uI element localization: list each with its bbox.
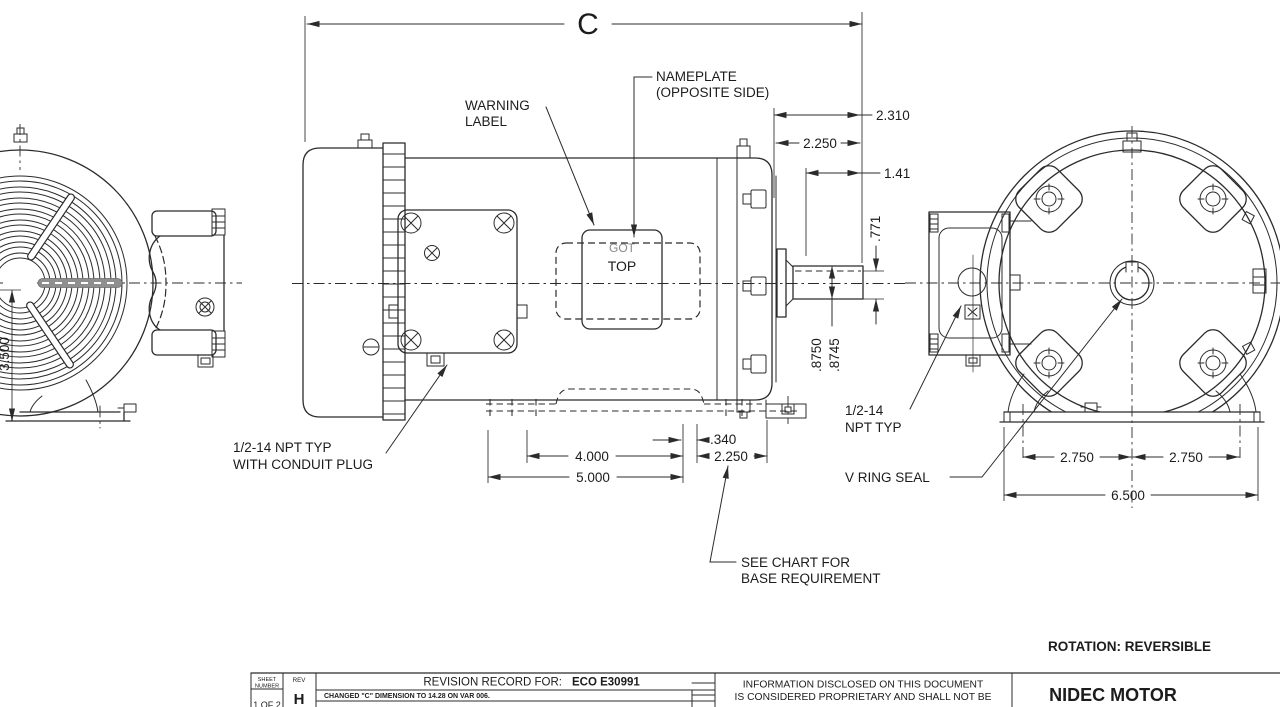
dim-shaft-dia-min: .8745 — [827, 338, 842, 372]
fan-cover-clip — [358, 134, 372, 148]
dim-6500-text: 6.500 — [1111, 488, 1145, 503]
conduit-label-2: WITH CONDUIT PLUG — [233, 457, 373, 472]
fan-cover — [303, 148, 383, 417]
dim-c-text: C — [577, 8, 599, 41]
sheet-number-label-2: NUMBER — [255, 684, 279, 690]
fan-end-feet — [6, 380, 136, 428]
dim-2750-right-text: 2.750 — [1169, 450, 1203, 465]
dim-771-text: .771 — [868, 216, 883, 242]
revision-record-eco: ECO E30991 — [572, 677, 640, 689]
see-chart-label-2: BASE REQUIREMENT — [741, 571, 881, 586]
fan-end-view: 3.500 — [0, 124, 242, 428]
side-view-labels: WARNING LABEL NAMEPLATE (OPPOSITE SIDE) … — [233, 69, 881, 586]
see-chart-leader — [710, 466, 736, 562]
shaft — [777, 249, 863, 317]
proprietary-line-2: IS CONSIDERED PROPRIETARY AND SHALL NOT … — [735, 692, 992, 703]
npt-leader — [910, 306, 961, 409]
dim-2750-left-text: 2.750 — [1060, 450, 1094, 465]
revision-note: CHANGED "C" DIMENSION TO 14.28 ON VAR 00… — [324, 693, 490, 700]
nameplate-text-2: (OPPOSITE SIDE) — [656, 85, 769, 100]
title-block: SHEET NUMBER 1 OF 2 REV H REVISION RECOR… — [251, 673, 1280, 707]
dim-2250-base-text: 2.250 — [714, 449, 748, 464]
rotation-note: ROTATION: REVERSIBLE — [1048, 639, 1211, 654]
conduit-box — [389, 210, 527, 366]
sheet-number-value: 1 OF 2 — [253, 700, 281, 707]
side-view: GOT TOP WARNING LABEL NAMEPLATE (OPPOSIT… — [233, 8, 910, 586]
dim-3500: 3.500 — [0, 290, 21, 421]
conduit-leader — [386, 365, 447, 453]
dim-5000-text: 5.000 — [576, 470, 610, 485]
flange-bolts — [737, 139, 766, 418]
motor-body — [405, 158, 776, 400]
dim-2250-top-text: 2.250 — [803, 136, 837, 151]
front-view: 1/2-14 NPT TYP V RING SEAL 2.750 2.750 6… — [845, 126, 1280, 508]
rev-value: H — [294, 691, 305, 707]
proprietary-line-1: INFORMATION DISCLOSED ON THIS DOCUMENT — [743, 680, 984, 691]
warning-label-text-2: LABEL — [465, 114, 508, 129]
conduit-label-1: 1/2-14 NPT TYP — [233, 440, 332, 455]
warning-label-text-1: WARNING — [465, 98, 530, 113]
dim-shaft-dia-max: .8750 — [809, 338, 824, 372]
plate-faint-text: GOT — [609, 241, 636, 255]
nameplate-text-1: NAMEPLATE — [656, 69, 737, 84]
louver-band — [363, 143, 405, 420]
npt-label-2: NPT TYP — [845, 420, 902, 435]
plate-top-text: TOP — [608, 258, 637, 274]
dim-340-text: .340 — [710, 432, 736, 447]
revision-record-label: REVISION RECORD FOR: — [423, 677, 562, 689]
conduit-box-side-profile — [149, 209, 225, 367]
npt-label-1: 1/2-14 — [845, 403, 884, 418]
dim-141-text: 1.41 — [884, 166, 910, 181]
side-view-dimensions: C 2.310 2.250 1.41 .771 .8750 .8745 — [305, 8, 910, 485]
motor-outline-drawing: 3.500 — [0, 0, 1280, 707]
hidden-base — [486, 389, 806, 424]
warning-plate: GOT TOP — [556, 230, 700, 329]
sheet-number-label-1: SHEET — [258, 677, 277, 683]
engineering-drawing-sheet: 3.500 — [0, 0, 1280, 707]
nameplate-leader — [634, 77, 652, 237]
warning-leader — [546, 107, 594, 225]
company-name: NIDEC MOTOR — [1049, 685, 1177, 705]
dim-4000-text: 4.000 — [575, 449, 609, 464]
rev-label: REV — [293, 677, 307, 684]
mounting-pads — [1011, 161, 1251, 401]
v-ring-seal-label: V RING SEAL — [845, 470, 930, 485]
top-bolt — [14, 128, 27, 142]
dim-3500-text: 3.500 — [0, 337, 12, 371]
dim-2310-text: 2.310 — [876, 108, 910, 123]
see-chart-label-1: SEE CHART FOR — [741, 555, 850, 570]
